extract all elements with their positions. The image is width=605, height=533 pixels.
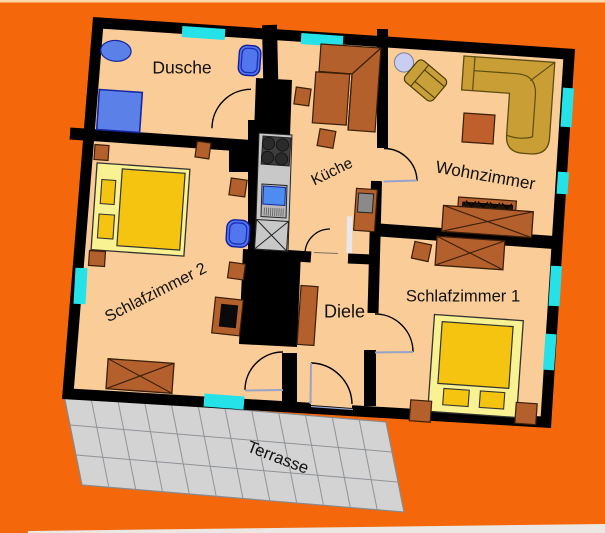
svg-text:Schlafzimmer 1: Schlafzimmer 1	[406, 287, 520, 306]
svg-text:Diele: Diele	[324, 302, 365, 322]
svg-text:Dusche: Dusche	[152, 58, 211, 78]
